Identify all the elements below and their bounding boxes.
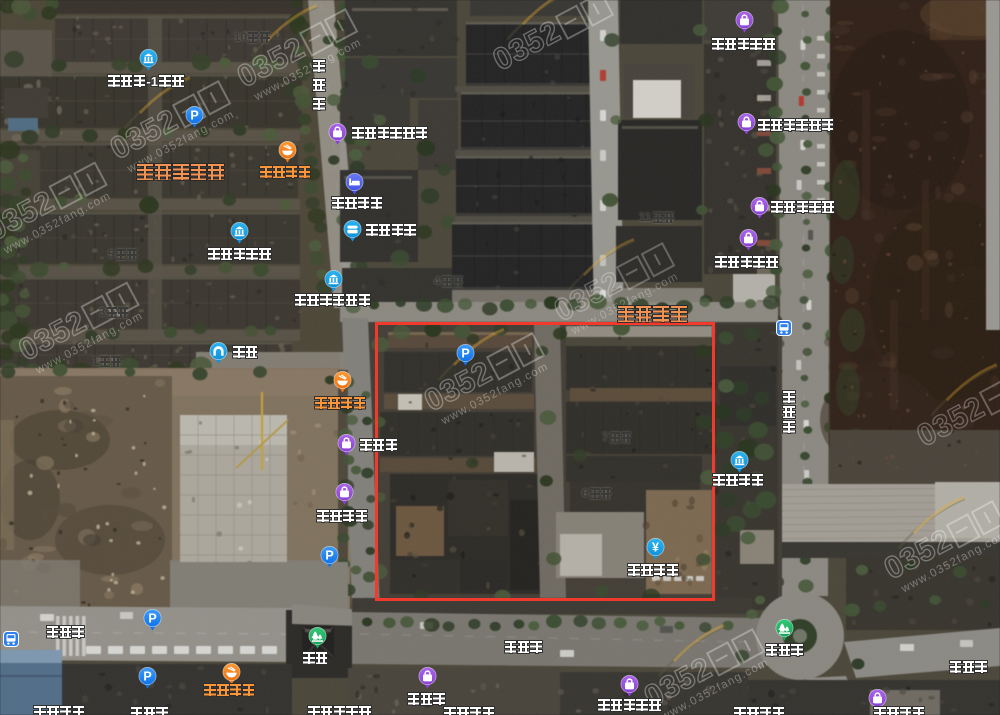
svg-text:P: P [148,611,156,625]
svg-text:P: P [461,346,469,360]
svg-text:P: P [190,108,198,122]
svg-text:P: P [143,669,151,683]
svg-text:¥: ¥ [652,541,659,555]
svg-text:P: P [325,548,333,562]
